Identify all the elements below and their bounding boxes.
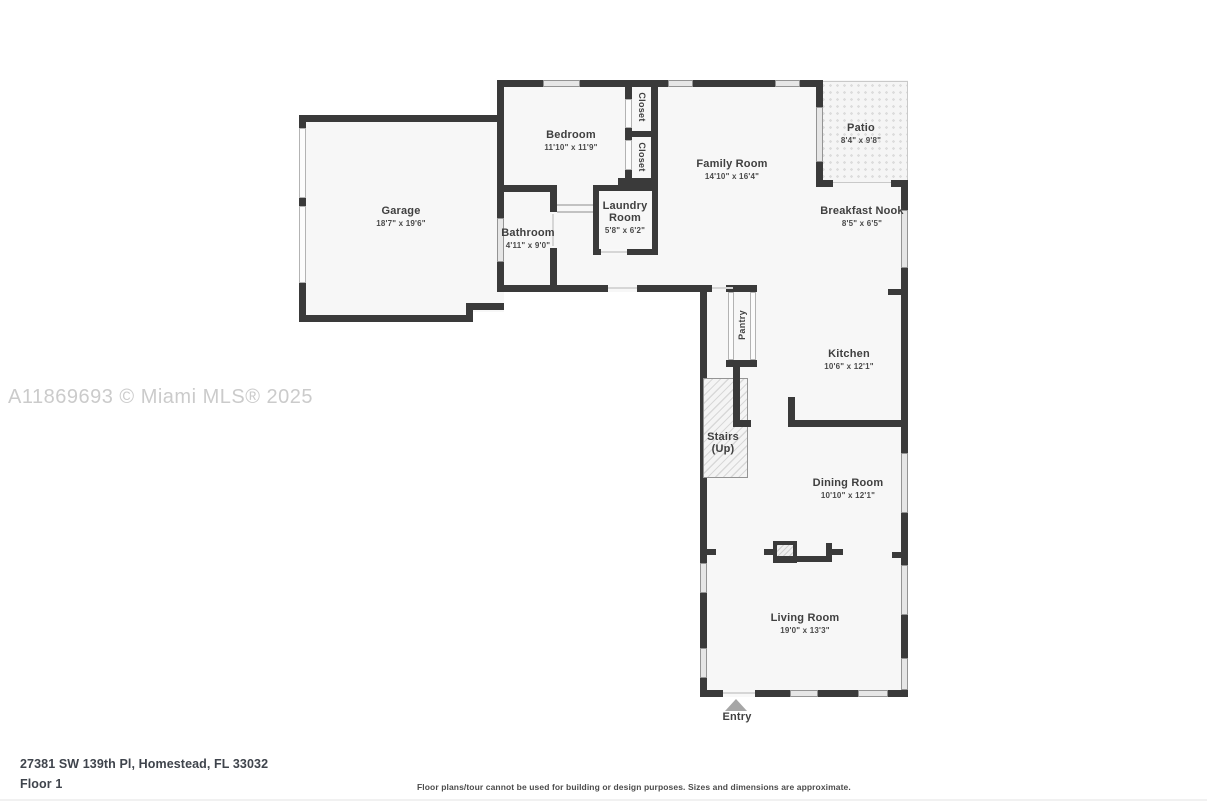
wall-dining-living-stub-left bbox=[700, 549, 716, 555]
wall-bathroom-right-a bbox=[550, 185, 557, 212]
wall-closet-divider bbox=[625, 131, 658, 137]
window-living-left-2 bbox=[700, 648, 707, 678]
wall-garage-top bbox=[299, 115, 504, 122]
bottom-divider bbox=[0, 799, 1207, 801]
wall-dining-living-stub-right bbox=[892, 552, 908, 558]
window-living-left-1 bbox=[700, 563, 707, 593]
room-label-patio: Patio 8'4" x 9'8" bbox=[841, 123, 881, 145]
wall-bathroom-right-b bbox=[550, 248, 557, 292]
wall-closet-bottom bbox=[618, 178, 658, 185]
opening-kitchen bbox=[712, 287, 733, 289]
room-label-kitchen: Kitchen 10'6" x 12'1" bbox=[824, 349, 874, 371]
room-label-closet-lower: Closet bbox=[637, 142, 647, 171]
room-label-closet-upper: Closet bbox=[637, 92, 647, 121]
wall-garage-step-h bbox=[466, 303, 504, 310]
floor-label: Floor 1 bbox=[20, 777, 62, 791]
wall-fireplace-stub-right bbox=[832, 549, 843, 555]
window-dining bbox=[901, 453, 908, 513]
closet-door-upper bbox=[625, 99, 632, 128]
room-label-family-room: Family Room 14'10" x 16'4" bbox=[696, 159, 767, 181]
wall-garage-bottom bbox=[299, 315, 473, 322]
pantry-door-right bbox=[750, 292, 756, 360]
opening-hall bbox=[608, 287, 637, 289]
wall-kitchen-dining-stub bbox=[788, 397, 795, 427]
wall-fireplace-stub-left bbox=[764, 549, 775, 555]
window-living-right-1 bbox=[901, 565, 908, 615]
cased-opening-bathroom bbox=[557, 204, 593, 213]
room-label-bathroom: Bathroom 4'11" x 9'0" bbox=[501, 228, 555, 250]
room-label-bedroom: Bedroom 11'10" x 11'9" bbox=[544, 130, 597, 152]
wall-upper-bottom-b bbox=[637, 285, 712, 292]
disclaimer-text: Floor plans/tour cannot be used for buil… bbox=[417, 782, 851, 792]
wall-pantry-bottom bbox=[726, 360, 757, 367]
wall-patio-stub-left bbox=[816, 180, 833, 187]
room-label-pantry: Pantry bbox=[737, 310, 747, 340]
wall-bathroom-top bbox=[497, 185, 557, 192]
wall-pantry-down bbox=[733, 367, 740, 427]
entry-arrow-icon bbox=[725, 699, 747, 711]
room-label-laundry-room: Laundry Room 5'8" x 6'2" bbox=[603, 201, 648, 235]
pantry-door-left bbox=[728, 292, 734, 360]
room-label-entry: Entry bbox=[722, 712, 751, 723]
wall-closet-left-a bbox=[625, 87, 632, 99]
room-label-stairs: Stairs (Up) bbox=[707, 432, 739, 455]
room-label-breakfast-nook: Breakfast Nook 8'5" x 6'5" bbox=[820, 206, 904, 228]
entry-door bbox=[723, 692, 755, 694]
room-label-dining-room: Dining Room 10'10" x 12'1" bbox=[813, 478, 884, 500]
window-living-right-2 bbox=[901, 658, 908, 690]
window-bottom-2 bbox=[858, 690, 888, 697]
address-text: 27381 SW 139th Pl, Homestead, FL 33032 bbox=[20, 757, 268, 771]
wall-breakfast-kitchen-stub bbox=[888, 289, 908, 295]
garage-door-2 bbox=[299, 206, 306, 283]
window-bottom-1 bbox=[790, 690, 818, 697]
garage-notch bbox=[473, 312, 504, 322]
stairs-area bbox=[703, 378, 748, 478]
room-label-living-room: Living Room 19'0" x 13'3" bbox=[771, 613, 840, 635]
floor-plan: Garage 18'7" x 19'6" Bedroom 11'10" x 11… bbox=[0, 0, 1207, 804]
closet-door-lower bbox=[625, 140, 632, 170]
wall-lower-left bbox=[700, 285, 707, 697]
mls-watermark: A11869693 © Miami MLS® 2025 bbox=[8, 386, 313, 409]
window-top-2 bbox=[668, 80, 693, 87]
window-top-1 bbox=[543, 80, 580, 87]
garage-door-1 bbox=[299, 128, 306, 198]
window-top-3 bbox=[775, 80, 800, 87]
wall-stairs-stub bbox=[733, 420, 751, 427]
laundry-door bbox=[601, 251, 627, 253]
wall-fireplace-bottom bbox=[775, 556, 832, 562]
window-patio bbox=[816, 107, 823, 162]
wall-kitchen-dining bbox=[788, 420, 908, 427]
room-label-garage: Garage 18'7" x 19'6" bbox=[376, 206, 426, 228]
